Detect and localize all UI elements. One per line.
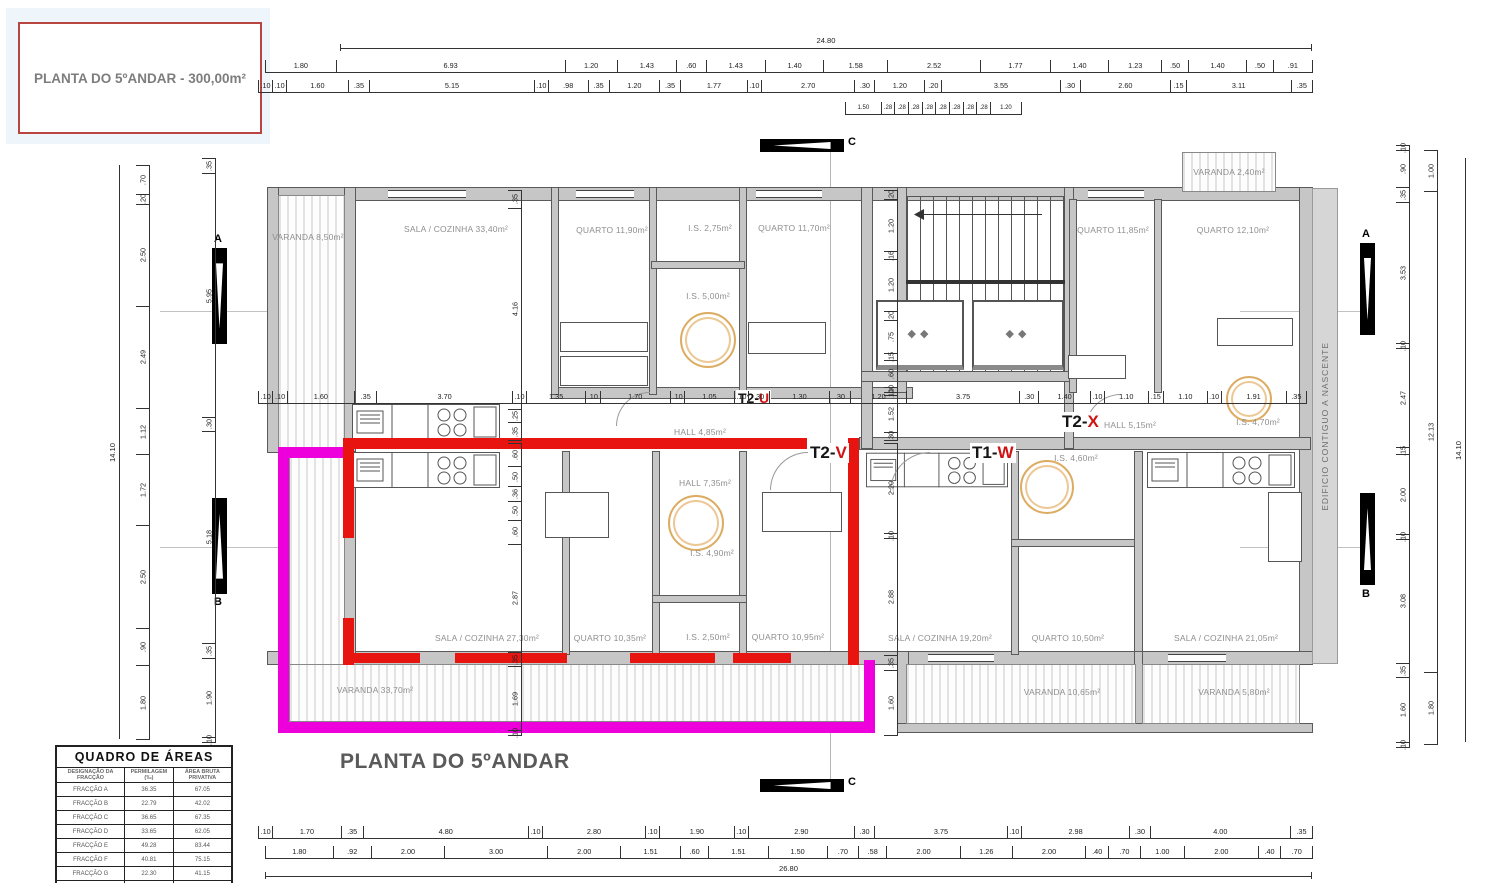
dim-total-top: 24.80 [340,36,1312,49]
wall-balcony-outer [898,724,1312,732]
dim-col-stair: .201.20.161.20.20.75.15.60.10 [884,190,898,393]
wall-core-left [862,188,872,448]
areas-table-header: DESIGNAÇÃO DA FRACÇÃO [56,768,124,783]
dim-row-top-sub: 1.50.28.28.28.28.28.28.28.281.20 [845,102,1022,115]
dim-col-right-1: .10.90.353.53.102.47.152.00.103.08.351.6… [1396,145,1410,748]
shower-is500 [680,312,736,368]
section-arrow-icon [1364,258,1371,321]
kitchen-counter-t2x [1145,452,1297,488]
kitchen-counter-t2u [352,404,500,440]
wall-partition [563,452,569,654]
dim-row-bottom-2: 1.80.922.003.002.001.51.601.511.50.70.58… [265,846,1313,859]
adjacent-building-strip: EDIFICIO CONTIGUO A NASCENTE [1312,188,1338,664]
room-label-quarto: QUARTO 11,70m² [758,223,830,233]
room-label-sala-cozinha: SALA / COZINHA 27,30m² [435,633,539,643]
section-arrow-icon [216,263,223,328]
furniture [545,492,609,538]
highlight-red-left-upper [343,438,354,538]
dim-total-left: 14.10 [106,165,120,739]
highlight-red-bottom-seg [733,653,791,663]
section-marker-c-top [760,139,844,152]
furniture [762,492,842,532]
highlight-magenta-left [278,447,289,733]
section-label-a: A [1362,228,1370,240]
wall-is-divider [1012,540,1140,546]
wall-partition [552,188,558,394]
room-label-quarto: QUARTO 12,10m² [1197,225,1269,235]
dim-col-left-2: .355.95.305.18.351.90.10 [202,158,216,743]
room-label-quarto: QUARTO 11,85m² [1077,225,1149,235]
window [928,654,994,662]
room-label-quarto: QUARTO 10,95m² [752,632,824,642]
wall-is-divider [653,596,746,602]
furniture [748,322,826,354]
kitchen-counter-side [1268,492,1302,562]
dim-col-plan-lower: .60.50.36.50.602.87.351.69.10 [508,443,522,736]
table-row: FRACÇÃO F 40.81 75.15 [56,853,232,867]
room-label-hall: HALL 4,85m² [674,427,726,437]
dim-row-bottom-1: .101.70.354.80.102.80.101.90.102.90.303.… [258,826,1313,839]
unit-tag-t1w: T1-W [970,443,1016,463]
wall-partition [1135,452,1142,654]
dim-col-t1w: 2.20.102.88.351.60 [884,443,898,736]
section-arrow-icon [773,782,830,789]
stair-landing-line [906,280,1065,284]
dim-total-bottom: 26.80 [265,864,1312,877]
wall-is-divider [652,262,744,268]
wall-partition [1012,452,1018,654]
dim-col-plan-upper: .354.16.25.35 [508,190,522,441]
room-label-quarto: QUARTO 10,50m² [1032,633,1104,643]
room-label-varanda: VARANDA 33,70m² [337,685,414,695]
drawing-title-box: PLANTA DO 5ºANDAR - 300,00m² [18,22,262,134]
areas-table-header: PERMILAGEM (‰) [124,768,173,783]
highlight-magenta-bottom [278,722,875,733]
section-arrow-icon [773,142,830,149]
wall-partition [740,188,746,394]
adjacent-building-note: EDIFICIO CONTIGUO A NASCENTE [1320,342,1330,511]
furniture [560,356,648,386]
shower-is460 [1020,460,1074,514]
highlight-red-bottom-seg [630,653,715,663]
table-row: FRACÇÃO G 22.30 41.15 [56,867,232,881]
furniture [560,322,648,352]
dim-row-top-1: 1.806.931.201.43.601.431.401.582.521.771… [265,60,1313,73]
areas-table-header: ÁREA BRUTA PRIVATIVA [173,768,232,783]
wall-partition [653,452,659,654]
unit-tag-t2v: T2-V [808,443,849,463]
wall-corridor-bottom-right [860,438,1310,449]
unit-tag-t2x: T2-X [1060,412,1101,432]
wall-partition [1155,200,1161,392]
wall-partition [740,452,746,654]
floor-plan-sheet: PLANTA DO 5ºANDAR - 300,00m² [0,0,1500,883]
highlight-magenta-right [864,660,875,733]
dim-row-mid-a: .10.101.60.353.70.101.35.101.70.101.05.1… [258,391,749,404]
balcony-hatch-middle [906,664,1136,724]
section-arrow-icon [216,513,223,578]
room-label-varanda: VARANDA 2,40m² [1193,167,1265,177]
room-label-is: I.S. 2,75m² [688,223,732,233]
room-label-sala-cozinha: SALA / COZINHA 21,05m² [1174,633,1278,643]
window [1088,190,1144,198]
room-label-is: I.S. 4,60m² [1054,453,1098,463]
table-row: FRACÇÃO B 22.79 42.02 [56,797,232,811]
room-label-varanda: VARANDA 10,65m² [1024,687,1101,697]
areas-table-body: FRACÇÃO A 36.35 67.05 FRACÇÃO B 22.79 42… [56,783,232,883]
section-label-c: C [848,136,856,148]
elevator-cab-right: ◆◆ [972,300,1064,370]
window [576,190,634,198]
section-arrow-icon [1364,508,1371,571]
dim-col-left-1: .70.202.502.491.121.722.50.901.80 [136,165,150,740]
table-row: FRACÇÃO E 49.28 83.44 [56,839,232,853]
room-label-is: I.S. 2,50m² [686,632,730,642]
drawing-title: PLANTA DO 5ºANDAR - 300,00m² [34,71,246,86]
section-marker-c-bottom [760,779,844,792]
room-label-hall: HALL 5,15m² [1104,420,1156,430]
plan-caption: PLANTA DO 5ºANDAR [340,750,570,774]
room-label-sala-cozinha: SALA / COZINHA 19,20m² [888,633,992,643]
elevator-icon: ◆◆ [908,327,933,340]
highlight-red-top [345,438,807,449]
wall-exterior-right [1300,188,1312,664]
shower-is490 [668,495,724,551]
furniture [1217,318,1293,346]
section-marker-a-right [1360,243,1375,335]
room-label-quarto: QUARTO 11,90m² [576,225,648,235]
room-label-is: I.S. 5,00m² [686,291,730,301]
table-row: FRACÇÃO D 33.65 62.05 [56,825,232,839]
room-label-is: I.S. 4,90m² [690,548,734,558]
door-arc [770,452,808,490]
areas-table: QUADRO DE ÁREAS DESIGNAÇÃO DA FRACÇÃO PE… [55,745,233,883]
highlight-magenta-top [278,447,348,458]
dim-col-core: .101.52.30 [884,392,898,441]
dim-col-right-2: 1.0012.131.80 [1424,150,1438,745]
dim-row-mid-c: 3.75.301.40.101.10.151.10.101.91.35 [906,391,1307,404]
wall-balcony-side [1135,652,1142,732]
room-label-varanda: VARANDA 8,50m² [272,232,344,242]
kitchen-counter-t2v [352,452,500,488]
section-label-b: B [1362,588,1370,600]
room-label-varanda: VARANDA 5,80m² [1198,687,1270,697]
dim-row-top-2: .10.101.60.355.15.10.98.351.20.351.77.10… [258,80,1313,93]
window [756,190,822,198]
dim-total-right: 14.10 [1452,158,1466,742]
stair-direction-line [922,214,1042,215]
window [1168,654,1226,662]
window [388,190,466,198]
room-label-quarto: QUARTO 10,35m² [574,633,646,643]
elevator-icon: ◆◆ [1006,327,1031,340]
highlight-red-right [848,438,859,665]
section-label-c: C [848,776,856,788]
section-marker-b-right [1360,493,1375,585]
furniture [1068,355,1126,379]
highlight-red-bottom-seg [350,653,420,663]
wall-exterior-left [268,188,278,452]
areas-table-title: QUADRO DE ÁREAS [56,746,232,768]
wall-partition [650,188,656,394]
room-label-sala-cozinha: SALA / COZINHA 33,40m² [404,224,508,234]
room-label-is: I.S. 4,70m² [1236,417,1280,427]
table-row: FRACÇÃO A 36.35 67.05 [56,783,232,797]
room-label-hall: HALL 7,35m² [679,478,731,488]
table-row: FRACÇÃO C 36.65 67.35 [56,811,232,825]
